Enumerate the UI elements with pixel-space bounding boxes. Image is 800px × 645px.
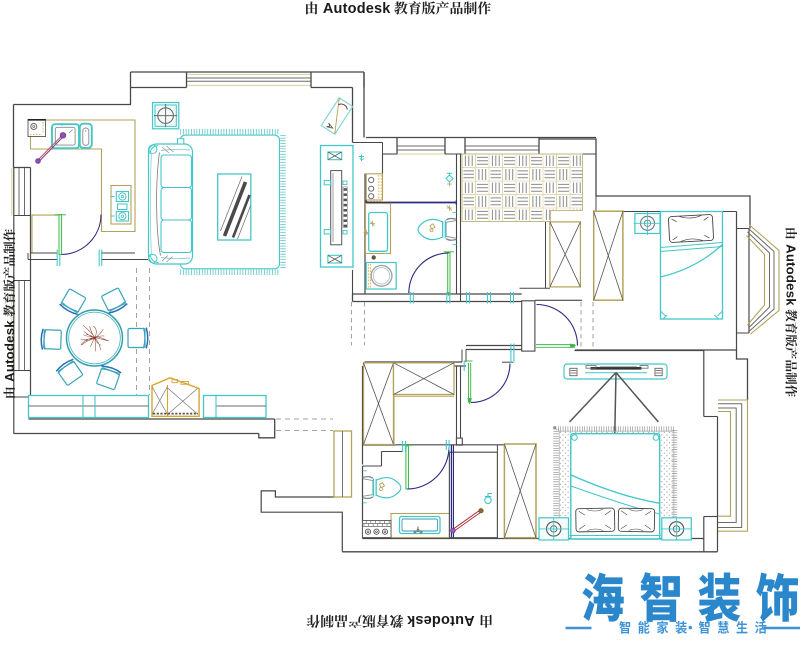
svg-text:Autodesk: Autodesk <box>406 612 474 628</box>
svg-text:Autodesk: Autodesk <box>2 320 17 382</box>
svg-text:Autodesk: Autodesk <box>784 244 799 306</box>
svg-text:Autodesk: Autodesk <box>323 1 391 17</box>
